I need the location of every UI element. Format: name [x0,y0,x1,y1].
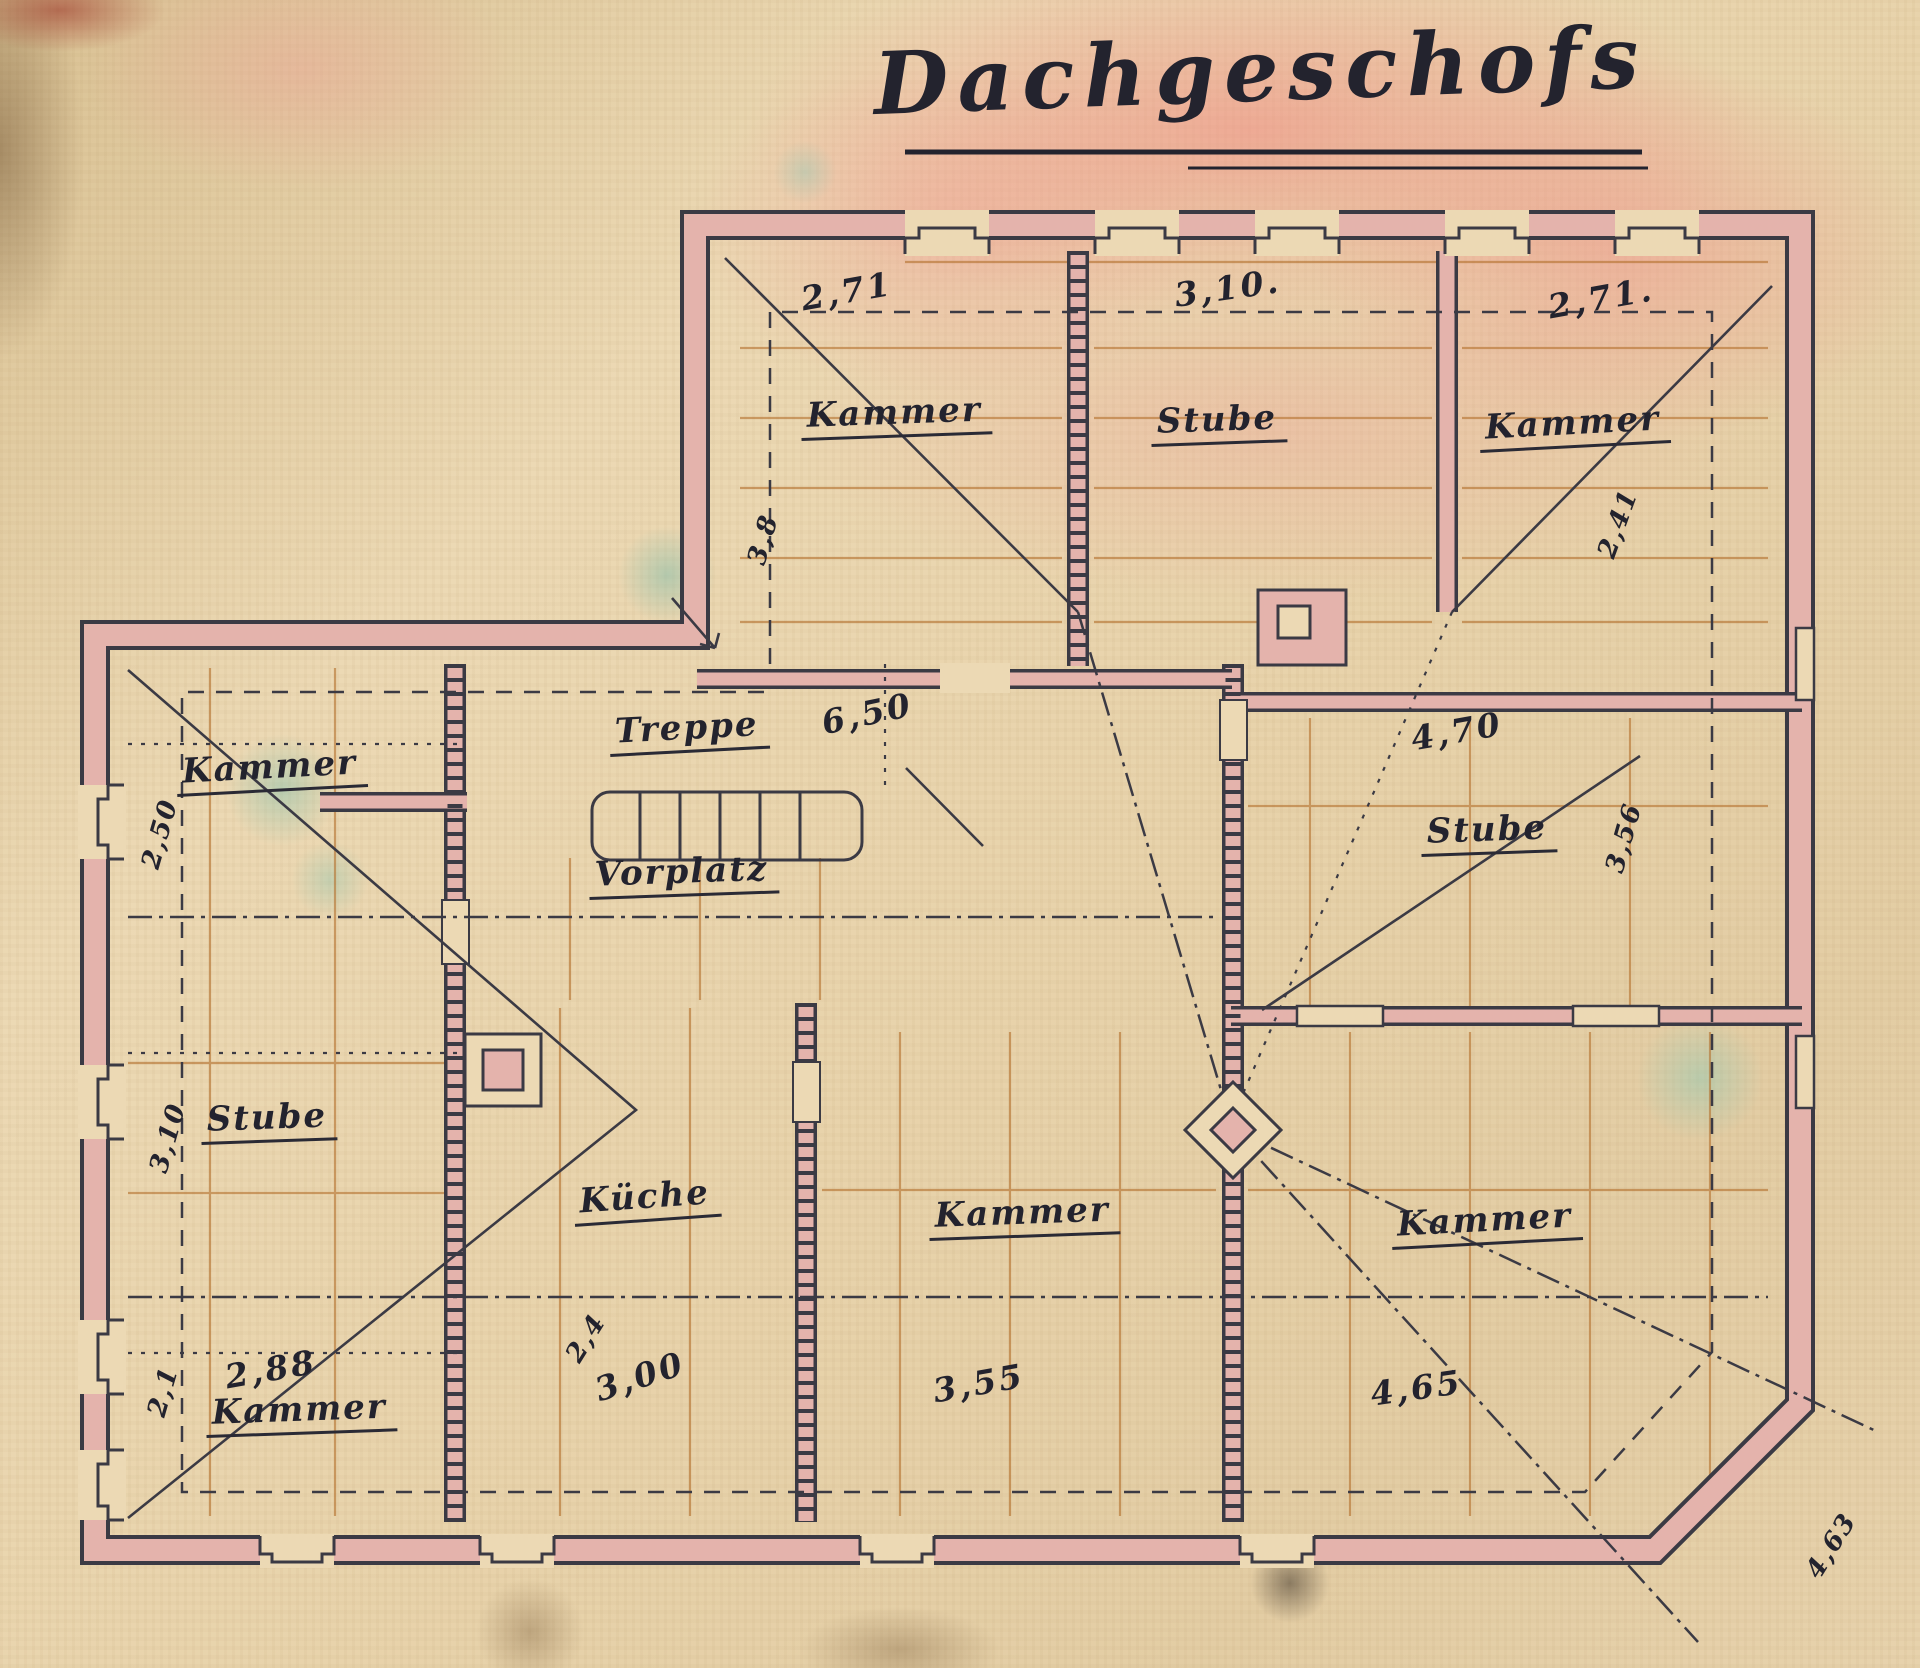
room-label-treppe: Treppe [608,704,770,757]
room-label-upper-middle-stube: Stube [1150,397,1288,447]
room-label-right-stube: Stube [1420,807,1558,857]
room-label-upper-left-kammer: Kammer [800,389,993,441]
floor-plan-sheet: Dachgeschofs Kammer 2,71 3,8 Stube 3,10.… [0,0,1920,1668]
room-label-middle-kammer: Kammer [928,1189,1121,1241]
room-label-left-stube: Stube [200,1095,338,1145]
room-label-vorplatz: Vorplatz [588,848,779,900]
